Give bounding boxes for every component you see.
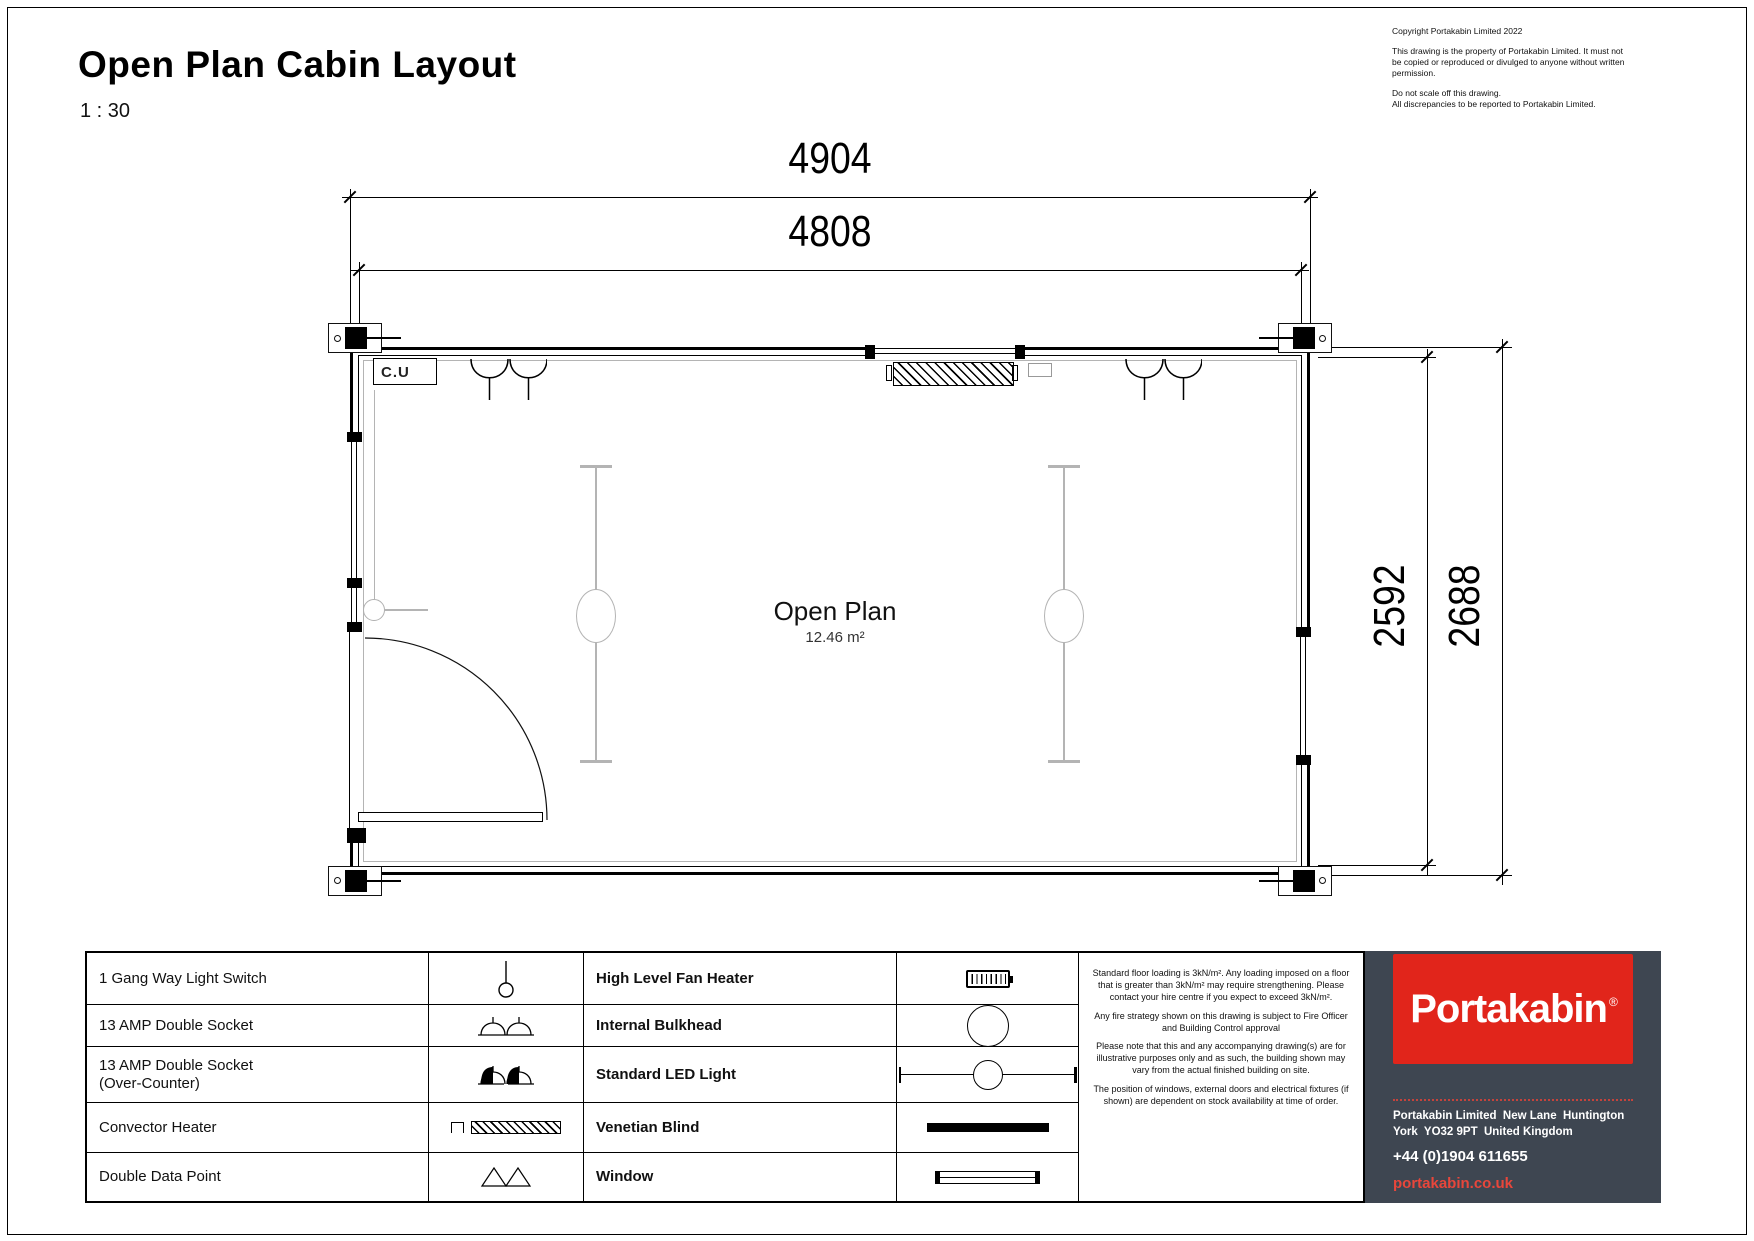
legend-label-line: 13 AMP Double Socket bbox=[99, 1057, 253, 1074]
convector-end-tab bbox=[1012, 365, 1018, 381]
door-leaf bbox=[358, 812, 543, 822]
window-post bbox=[347, 622, 362, 632]
led-light-icon bbox=[897, 1047, 1079, 1103]
door-jamb bbox=[347, 828, 366, 843]
dim-extension-line bbox=[1310, 189, 1311, 333]
double-socket-symbol bbox=[1125, 358, 1202, 402]
divider bbox=[1393, 1099, 1633, 1101]
light-switch-symbol bbox=[363, 599, 385, 621]
dim-value-internal-depth: 2592 bbox=[1365, 479, 1415, 734]
fan-heater-icon bbox=[897, 953, 1079, 1005]
dim-value-internal-width: 4808 bbox=[703, 207, 958, 257]
window-top bbox=[865, 345, 1025, 359]
venetian-blind-icon bbox=[897, 1103, 1079, 1153]
dim-extension-line bbox=[1318, 865, 1436, 866]
legend-label: Internal Bulkhead bbox=[584, 1005, 897, 1047]
window-post bbox=[865, 345, 875, 359]
window-mullion bbox=[347, 578, 362, 588]
dim-value-overall-depth: 2688 bbox=[1440, 479, 1490, 734]
dim-extension-line bbox=[1322, 347, 1512, 348]
page-title: Open Plan Cabin Layout bbox=[78, 44, 517, 86]
address-line-1: Portakabin Limited New Lane Huntington bbox=[1393, 1110, 1643, 1122]
window-icon bbox=[897, 1153, 1079, 1201]
dim-line-internal-width bbox=[351, 270, 1309, 271]
consumer-unit-label: C.U bbox=[373, 358, 437, 385]
registered-mark: ® bbox=[1609, 995, 1618, 1009]
scale-label: 1 : 30 bbox=[80, 100, 130, 123]
legend-table: 1 Gang Way Light Switch High Level Fan H… bbox=[85, 951, 1365, 1203]
dim-value-overall-width: 4904 bbox=[703, 134, 958, 184]
window-right bbox=[1296, 627, 1311, 765]
copyright-line: Copyright Portakabin Limited 2022 bbox=[1392, 26, 1629, 37]
window-post bbox=[1296, 627, 1311, 637]
window-glazing bbox=[1305, 637, 1306, 755]
convector-heater-symbol bbox=[893, 362, 1014, 386]
window-glazing bbox=[875, 353, 1015, 354]
legend-label: Venetian Blind bbox=[584, 1103, 897, 1153]
legend-label: 13 AMP Double Socket (Over-Counter) bbox=[87, 1047, 429, 1103]
legend-label: Window bbox=[584, 1153, 897, 1201]
legend-label: Convector Heater bbox=[87, 1103, 429, 1153]
door-threshold-line bbox=[349, 632, 350, 828]
window-glazing bbox=[351, 442, 352, 622]
double-socket-symbol bbox=[470, 358, 547, 402]
copyright-ownership: This drawing is the property of Portakab… bbox=[1392, 46, 1629, 79]
room-label: Open Plan bbox=[685, 596, 985, 627]
dim-line-overall-depth bbox=[1502, 339, 1503, 885]
phone-number: +44 (0)1904 611655 bbox=[1393, 1148, 1528, 1165]
note-paragraph: Any fire strategy shown on this drawing … bbox=[1091, 1011, 1351, 1035]
notes-panel: Standard floor loading is 3kN/m². Any lo… bbox=[1079, 953, 1363, 1201]
data-point-icon bbox=[429, 1153, 584, 1201]
window-post bbox=[1015, 345, 1025, 359]
switch-wire bbox=[385, 609, 428, 611]
window-glazing bbox=[875, 348, 1015, 349]
bulkhead-icon bbox=[897, 1005, 1079, 1047]
legend-label: 1 Gang Way Light Switch bbox=[87, 953, 429, 1005]
address-line-2: York YO32 9PT United Kingdom bbox=[1393, 1126, 1643, 1138]
brand-name: Portakabin bbox=[1410, 987, 1607, 1031]
window-post bbox=[1296, 755, 1311, 765]
window-left bbox=[347, 432, 362, 632]
note-paragraph: Standard floor loading is 3kN/m². Any lo… bbox=[1091, 968, 1351, 1004]
convector-heater-icon bbox=[429, 1103, 584, 1153]
note-paragraph: The position of windows, external doors … bbox=[1091, 1084, 1351, 1108]
fan-heater-symbol bbox=[1028, 363, 1052, 377]
brand-logo: Portakabin® bbox=[1393, 954, 1633, 1064]
double-socket-icon bbox=[429, 1005, 584, 1047]
light-switch-icon bbox=[429, 953, 584, 1005]
drawing-sheet: Open Plan Cabin Layout 1 : 30 Copyright … bbox=[0, 0, 1754, 1241]
building-outline: C.U bbox=[350, 347, 1310, 875]
convector-end-tab bbox=[886, 365, 892, 381]
legend-label: High Level Fan Heater bbox=[584, 953, 897, 1005]
window-post bbox=[347, 432, 362, 442]
note-paragraph: Please note that this and any accompanyi… bbox=[1091, 1041, 1351, 1077]
dim-line-internal-depth bbox=[1427, 349, 1428, 875]
room-area: 12.46 m² bbox=[685, 629, 985, 646]
website-link: portakabin.co.uk bbox=[1393, 1175, 1513, 1192]
window-glazing bbox=[356, 442, 357, 622]
dim-extension-line bbox=[1318, 357, 1436, 358]
double-socket-over-counter-icon bbox=[429, 1047, 584, 1103]
switch-wire bbox=[374, 390, 375, 599]
legend-label: 13 AMP Double Socket bbox=[87, 1005, 429, 1047]
brand-panel: Portakabin® Portakabin Limited New Lane … bbox=[1365, 951, 1661, 1203]
window-glazing bbox=[1300, 637, 1301, 755]
copyright-note: Copyright Portakabin Limited 2022 This d… bbox=[1392, 26, 1629, 119]
legend-label: Double Data Point bbox=[87, 1153, 429, 1201]
dim-extension-line bbox=[350, 189, 351, 333]
copyright-scale-warning: Do not scale off this drawing. All discr… bbox=[1392, 88, 1629, 110]
legend-label: Standard LED Light bbox=[584, 1047, 897, 1103]
dim-extension-line bbox=[1322, 875, 1512, 876]
dim-line-overall-width bbox=[342, 197, 1318, 198]
door-swing-arc bbox=[358, 634, 553, 826]
legend-label-line: (Over-Counter) bbox=[99, 1075, 200, 1092]
